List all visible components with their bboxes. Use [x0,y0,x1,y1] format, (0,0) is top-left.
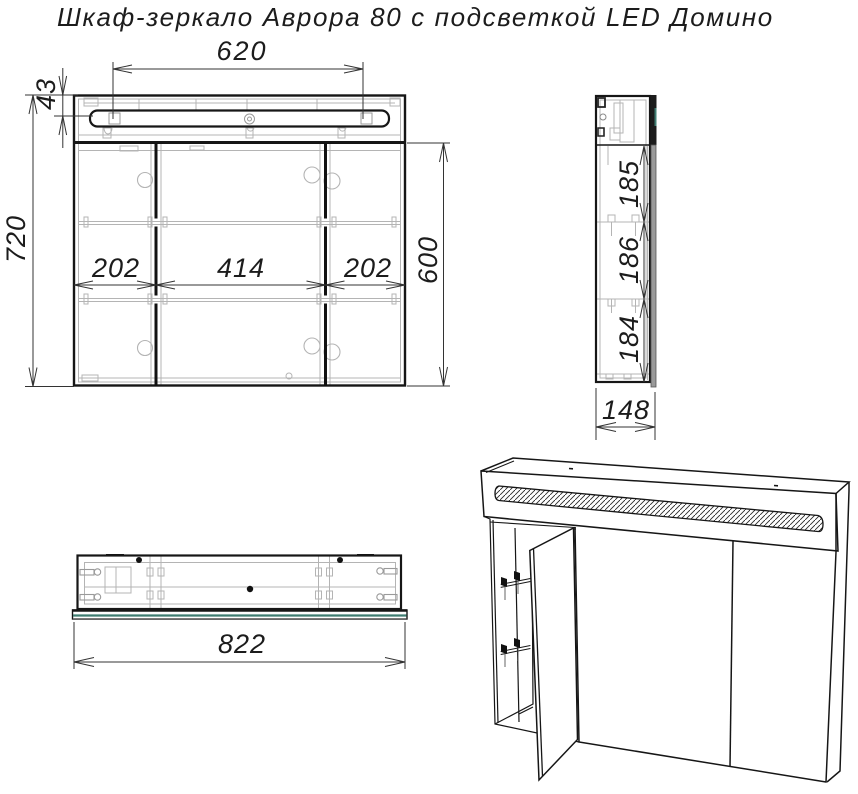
svg-text:620: 620 [216,36,267,66]
svg-text:720: 720 [1,215,31,263]
svg-text:Шкаф-зеркало Аврора 80 с подсв: Шкаф-зеркало Аврора 80 с подсветкой LED … [57,2,774,32]
svg-text:202: 202 [91,253,140,283]
svg-text:414: 414 [217,253,265,283]
svg-text:185: 185 [614,160,644,208]
svg-text:822: 822 [218,629,266,659]
svg-text:148: 148 [602,395,650,425]
svg-text:184: 184 [614,315,644,363]
svg-text:186: 186 [614,236,644,284]
svg-text:202: 202 [343,253,392,283]
svg-text:600: 600 [413,236,443,284]
